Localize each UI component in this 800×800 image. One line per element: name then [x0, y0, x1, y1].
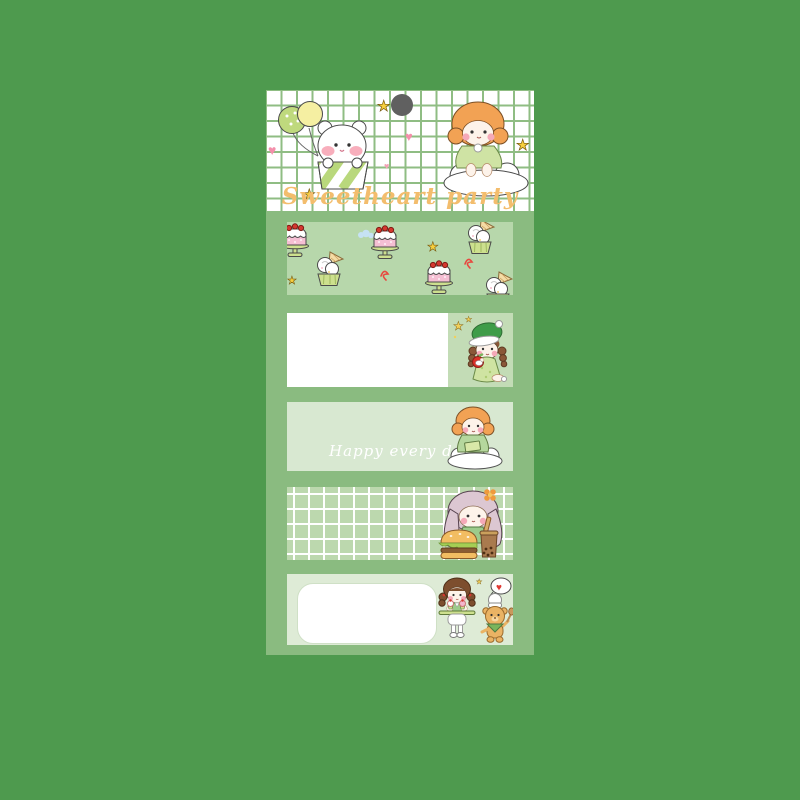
memo-sheet-panel: ★ ★ ★ ♥ ♥ ♥: [266, 90, 534, 655]
star-icon: ★: [287, 275, 297, 287]
mini-cloud-icon: [358, 230, 374, 239]
apple-girl-block: ★ ★: [448, 313, 513, 387]
happy-strip: Happy every day: [287, 402, 513, 471]
cake-pattern-illustration: ★ ★: [287, 222, 513, 295]
girl-with-apple-icon: ★ ★: [448, 313, 513, 387]
grid-strip: [287, 487, 513, 560]
heart-icon: ♥: [268, 142, 276, 158]
star-icon: ★: [516, 137, 529, 154]
heart-icon: ♥: [496, 583, 502, 594]
star-icon: ★: [427, 239, 439, 254]
star-icon: ★: [377, 98, 390, 115]
rounded-writing-label: [297, 583, 437, 644]
product-image: ★ ★ ★ ♥ ♥ ♥: [0, 0, 800, 800]
squiggle-icon: [381, 271, 388, 280]
header-grid-banner: ★ ★ ★ ♥ ♥ ♥: [266, 90, 534, 211]
rounded-label-strip: ♥ ★: [287, 574, 513, 645]
balloons-icon: [279, 102, 323, 157]
chef-bear-icon: [482, 594, 513, 643]
girl-reading-on-cloud-icon: [439, 404, 509, 470]
baker-girl-and-bear-illustration: ♥ ★: [435, 574, 513, 645]
star-icon: ★: [476, 578, 482, 586]
baker-girl-icon: [439, 578, 475, 638]
squiggle-icon: [465, 259, 472, 268]
sheet-title: Sweetheart party: [266, 183, 534, 210]
burger-icon: [439, 530, 477, 559]
star-icon: ★: [465, 315, 472, 324]
heart-icon: ♥: [384, 161, 389, 171]
heart-icon: ♥: [405, 129, 413, 144]
white-label-strip: ★ ★: [287, 313, 513, 387]
star-icon: ★: [453, 319, 464, 333]
girl-with-burger-icon: [433, 487, 513, 560]
punch-dot-icon: [391, 94, 413, 116]
writing-area: [287, 313, 448, 387]
cake-pattern-strip: ★ ★: [287, 222, 513, 295]
